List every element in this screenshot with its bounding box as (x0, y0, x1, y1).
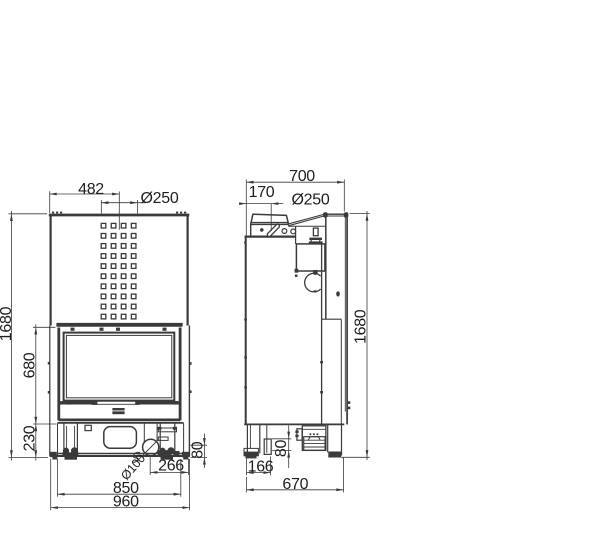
svg-text:166: 166 (248, 458, 274, 475)
svg-text:80: 80 (273, 440, 290, 458)
svg-text:680: 680 (21, 352, 38, 378)
svg-text:700: 700 (289, 168, 315, 185)
svg-text:170: 170 (249, 184, 275, 201)
svg-text:Ø250: Ø250 (141, 190, 179, 207)
svg-text:266: 266 (158, 458, 184, 475)
svg-text:Ø250: Ø250 (292, 191, 330, 208)
svg-text:1680: 1680 (352, 309, 369, 344)
svg-text:482: 482 (78, 181, 104, 198)
svg-text:230: 230 (21, 425, 38, 451)
svg-text:960: 960 (113, 494, 139, 511)
svg-text:1680: 1680 (0, 306, 15, 341)
svg-text:80: 80 (189, 441, 206, 459)
svg-text:670: 670 (282, 476, 308, 493)
